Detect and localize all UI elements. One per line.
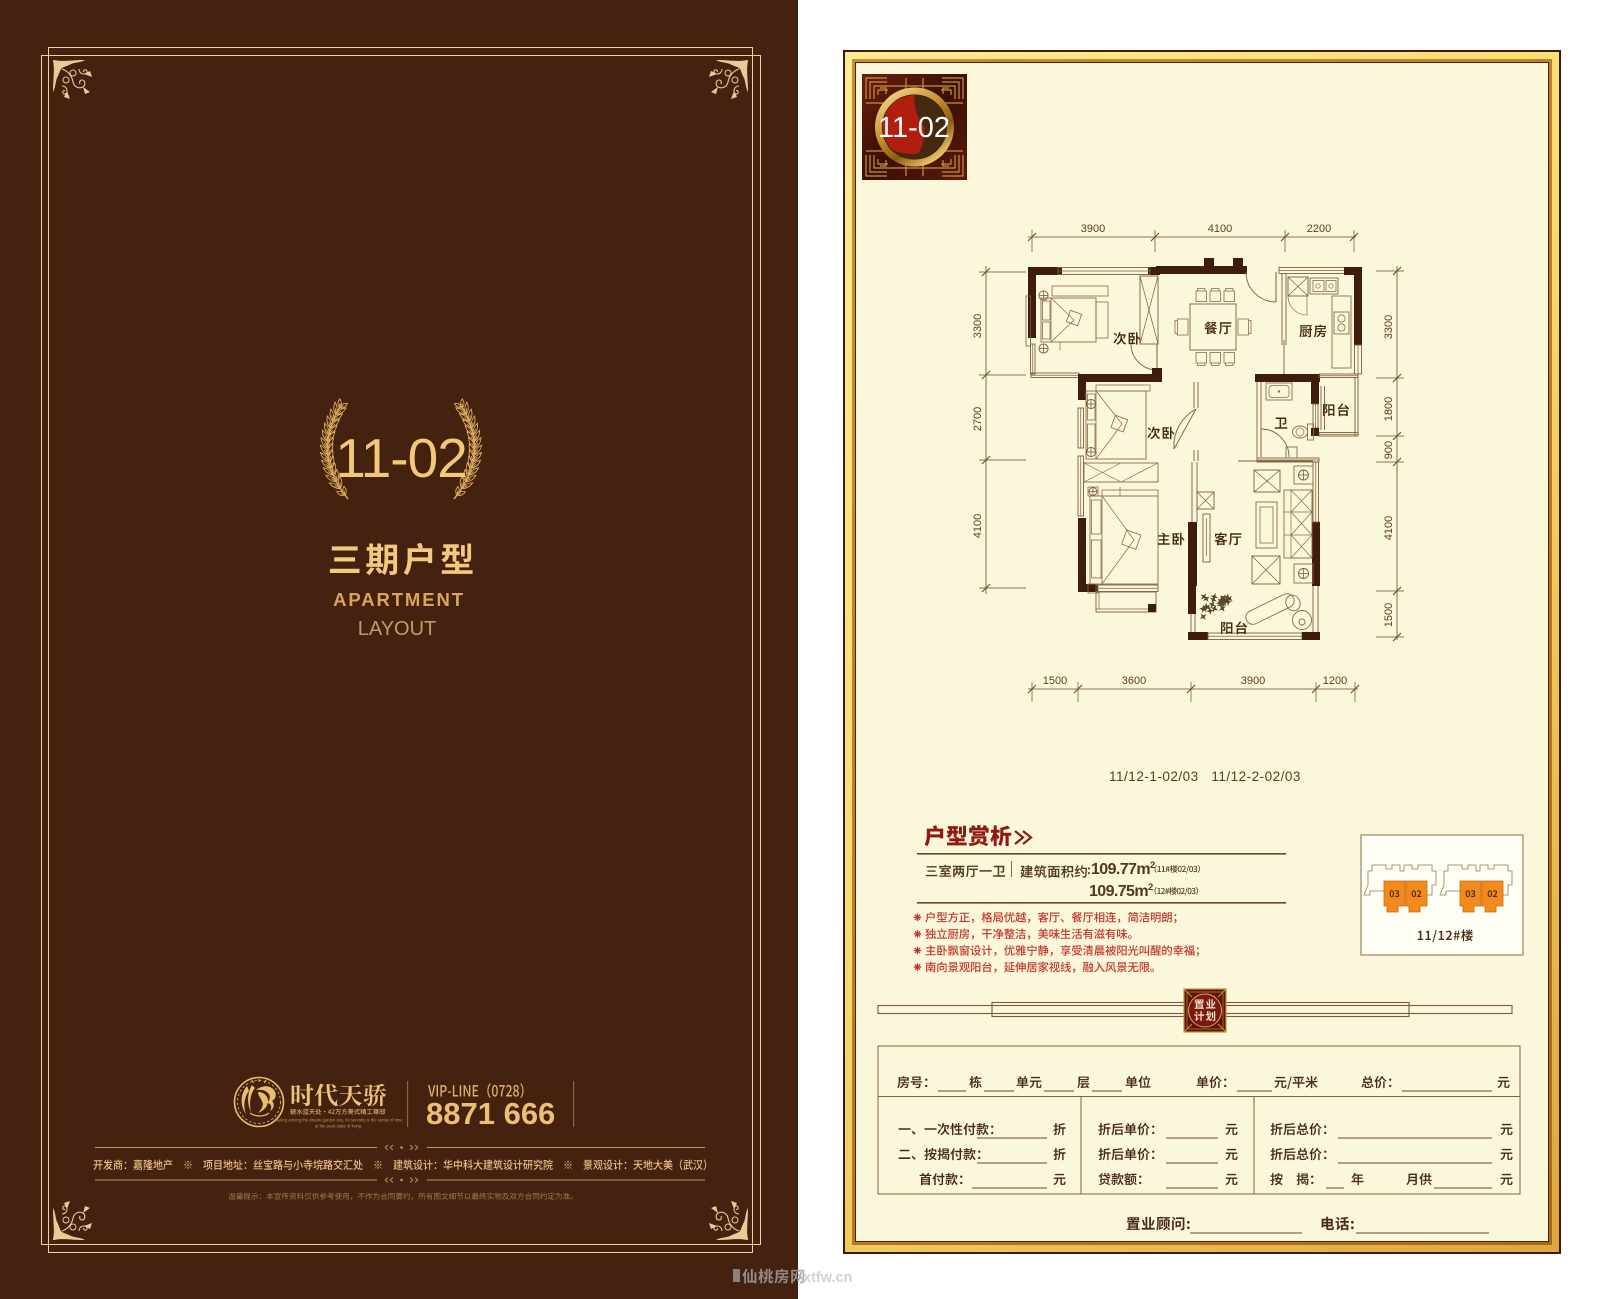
svg-text:1200: 1200 bbox=[1323, 675, 1347, 687]
svg-text:2200: 2200 bbox=[1307, 223, 1331, 235]
svg-text:3900: 3900 bbox=[1081, 223, 1105, 235]
svg-text:109.77m2: 109.77m2 bbox=[1091, 860, 1155, 878]
svg-text:3900: 3900 bbox=[1241, 675, 1265, 687]
svg-text:4100: 4100 bbox=[1383, 516, 1395, 540]
svg-text:3300: 3300 bbox=[972, 314, 984, 338]
svg-text:11/12-1-02/03 11/12-2-02/03: 11/12-1-02/03 11/12-2-02/03 bbox=[1109, 769, 1301, 784]
svg-text:3600: 3600 bbox=[1122, 675, 1146, 687]
svg-text:1500: 1500 bbox=[1383, 603, 1395, 627]
svg-text:11-02: 11-02 bbox=[878, 112, 950, 144]
svg-text:900: 900 bbox=[1383, 441, 1395, 459]
svg-text:4100: 4100 bbox=[1208, 223, 1232, 235]
svg-text:1500: 1500 bbox=[1043, 675, 1067, 687]
svg-text:4100: 4100 bbox=[972, 514, 984, 538]
svg-text:2700: 2700 bbox=[972, 407, 984, 431]
svg-text:109.75m2: 109.75m2 bbox=[1089, 882, 1153, 900]
svg-text:1800: 1800 bbox=[1383, 397, 1395, 421]
svg-text:3300: 3300 bbox=[1383, 315, 1395, 339]
